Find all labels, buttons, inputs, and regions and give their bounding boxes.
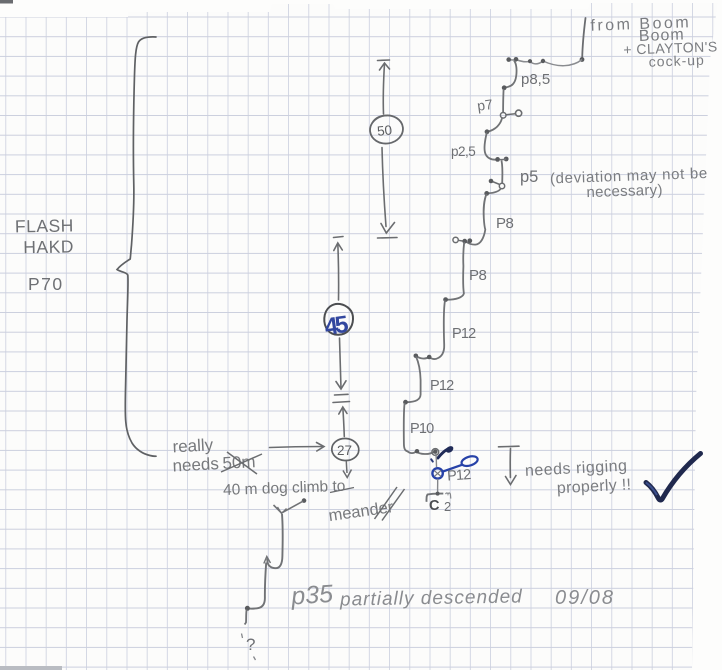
svg-text:27: 27 xyxy=(337,443,352,458)
svg-text:?: ? xyxy=(246,635,255,654)
svg-text:necessary): necessary) xyxy=(586,182,663,202)
svg-text:really: really xyxy=(172,435,214,456)
svg-text:p2,5: p2,5 xyxy=(451,144,475,159)
svg-text:09/08: 09/08 xyxy=(555,587,615,609)
svg-text:p8,5: p8,5 xyxy=(521,71,550,88)
svg-text:FLASH: FLASH xyxy=(15,215,74,236)
svg-text:P8: P8 xyxy=(496,215,514,232)
svg-text:50: 50 xyxy=(376,122,393,138)
svg-text:2: 2 xyxy=(444,499,451,514)
svg-text:needs: needs xyxy=(172,454,219,475)
svg-text:P8: P8 xyxy=(469,267,487,284)
svg-text:P12: P12 xyxy=(430,378,454,394)
svg-text:partially descended: partially descended xyxy=(339,586,523,610)
svg-text:P10: P10 xyxy=(410,421,434,437)
svg-text:P12: P12 xyxy=(452,326,476,342)
svg-text:C: C xyxy=(429,498,440,514)
svg-text:cock-up: cock-up xyxy=(648,52,705,70)
svg-text:P70: P70 xyxy=(28,274,64,294)
svg-text:HAKD: HAKD xyxy=(23,236,74,257)
svg-text:p35: p35 xyxy=(289,580,334,611)
svg-text:P12: P12 xyxy=(447,467,472,485)
svg-text:p5: p5 xyxy=(520,168,538,186)
svg-text:p7: p7 xyxy=(476,96,494,114)
